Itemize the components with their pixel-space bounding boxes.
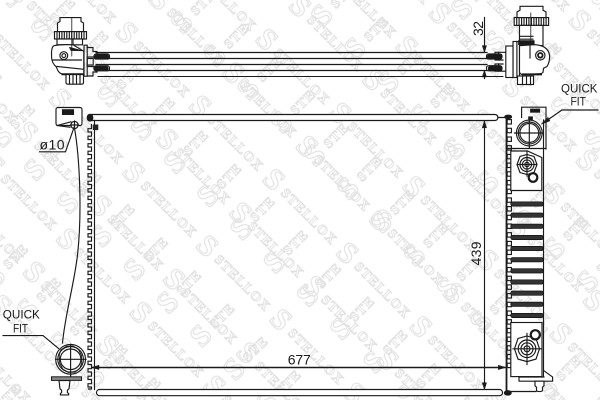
svg-text:677: 677	[288, 351, 311, 367]
svg-text:439: 439	[468, 241, 484, 265]
svg-text:ø10: ø10	[40, 137, 65, 153]
svg-text:FIT: FIT	[571, 96, 587, 108]
svg-text:32: 32	[470, 21, 486, 36]
svg-text:QUICK: QUICK	[3, 310, 40, 322]
svg-text:QUICK: QUICK	[561, 84, 598, 96]
svg-text:FIT: FIT	[13, 323, 28, 335]
